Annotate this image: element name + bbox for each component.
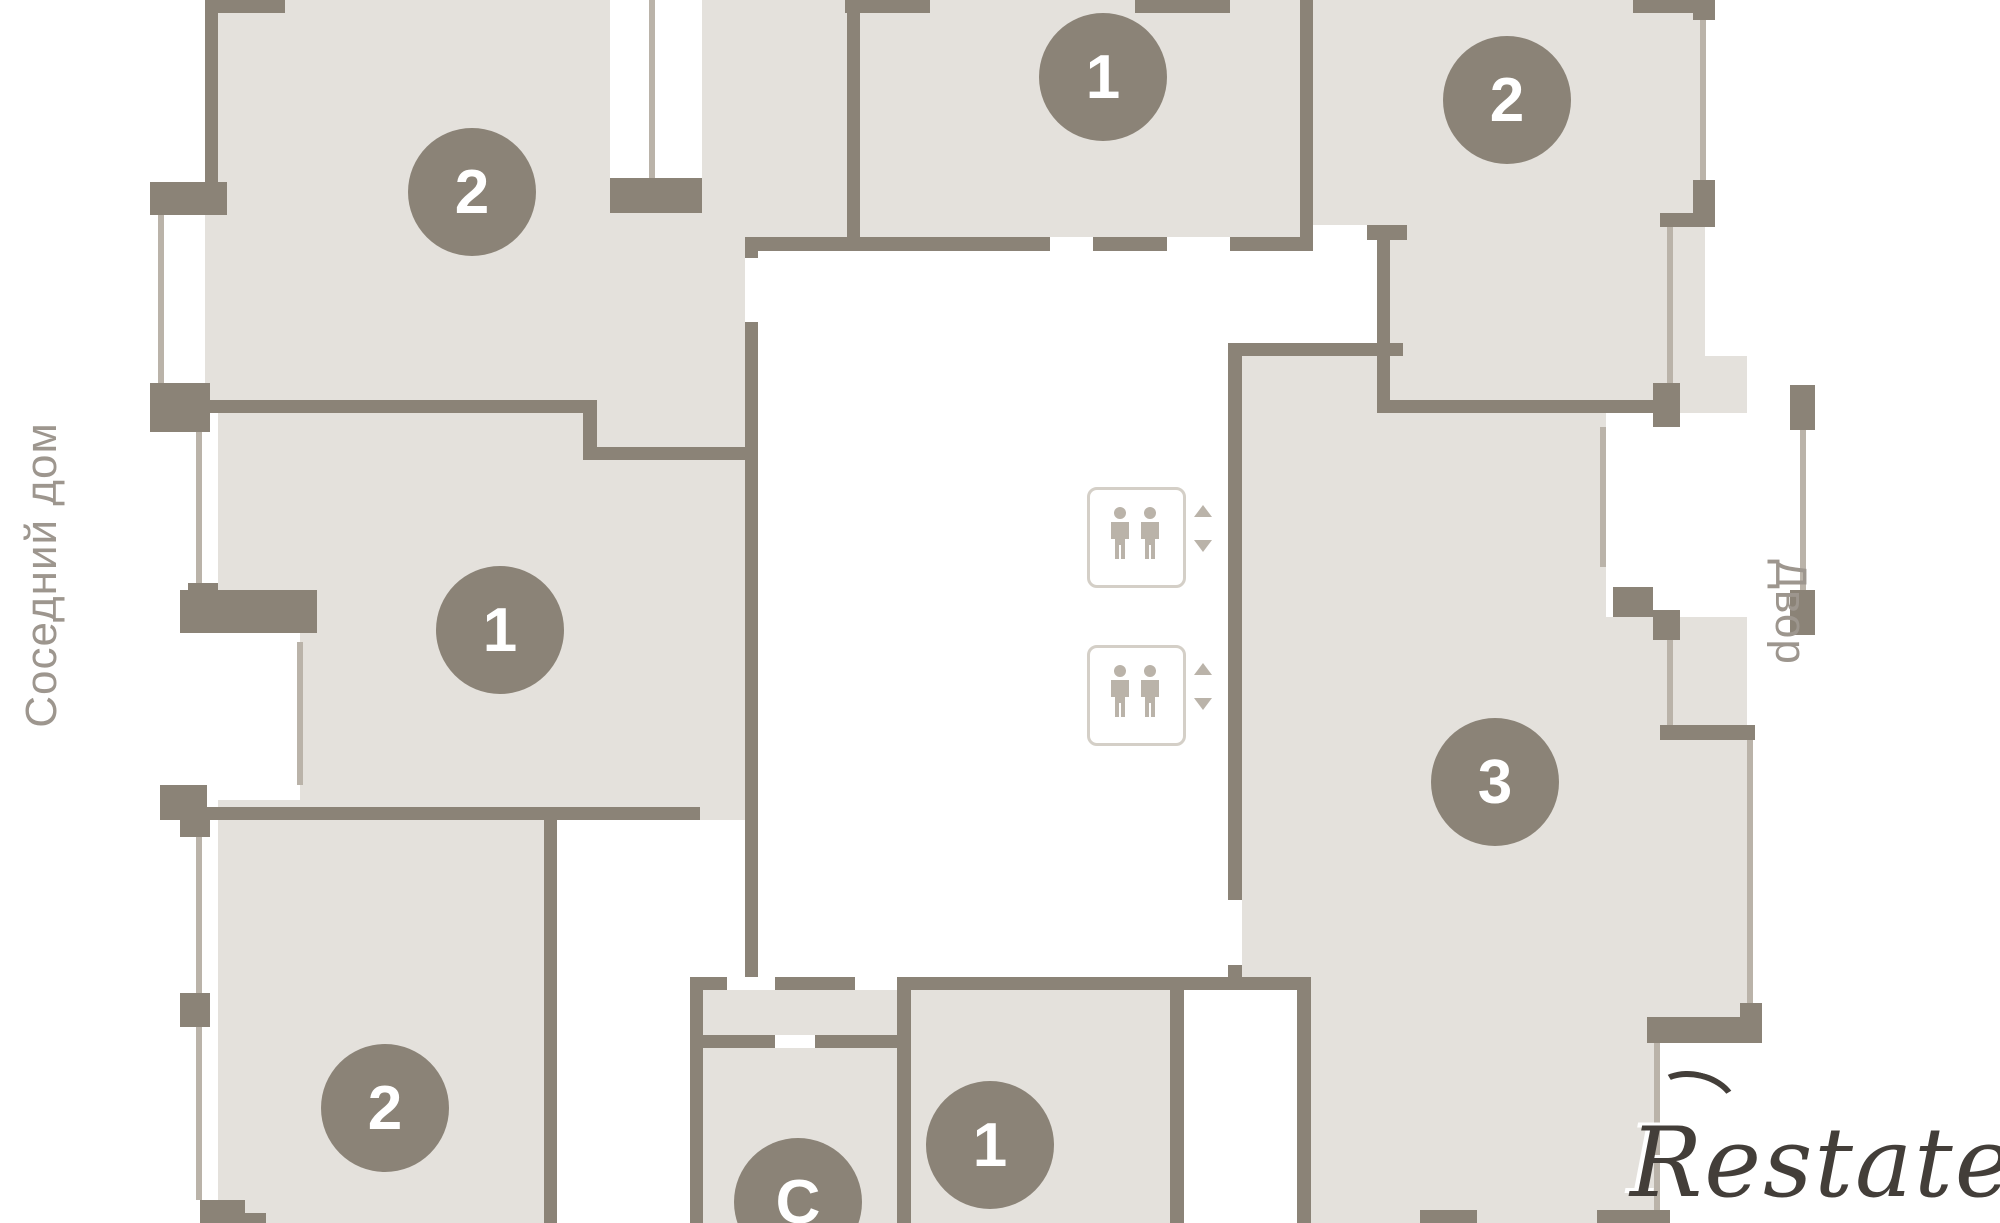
neighbor-house-label: Соседний дом <box>17 325 67 825</box>
apartment-badge-mid-left[interactable]: 1 <box>436 566 564 694</box>
elevator-up-arrow <box>1194 663 1212 675</box>
wall-block <box>1693 0 1715 20</box>
wall-block <box>205 0 218 182</box>
wall-block <box>188 583 218 633</box>
wall-block <box>1647 1017 1740 1043</box>
wall-segment <box>1093 237 1167 251</box>
room-fill-right-large-ext <box>1311 1017 1660 1223</box>
window <box>1667 640 1673 725</box>
stair-elevator-core <box>758 251 1228 977</box>
door-gap <box>727 977 775 990</box>
wall-block <box>200 1213 266 1223</box>
wall-segment <box>1377 225 1390 413</box>
window-notch-top <box>610 0 702 185</box>
wall-segment <box>690 977 1311 990</box>
apartment-badge-bottom-left[interactable]: 2 <box>321 1044 449 1172</box>
door-gap <box>855 977 897 990</box>
door-gap <box>745 258 758 322</box>
window <box>196 432 202 583</box>
apartment-badge-top-left[interactable]: 2 <box>408 128 536 256</box>
door-gap <box>775 1035 815 1048</box>
window <box>649 0 655 180</box>
wall-block <box>1653 383 1680 427</box>
door-gap <box>1050 237 1093 251</box>
elevator-down-arrow <box>1194 698 1212 710</box>
wall-segment <box>745 251 758 977</box>
wall-segment <box>1228 343 1403 356</box>
wall-block <box>1613 587 1653 617</box>
window <box>1700 20 1706 180</box>
elevator-down-arrow <box>1194 540 1212 552</box>
entry-notch-top-right <box>1313 225 1377 343</box>
wall-segment <box>1135 0 1230 13</box>
apartment-badge-top-center[interactable]: 1 <box>1039 13 1167 141</box>
wall-segment <box>1170 977 1184 1223</box>
wall-block <box>1790 385 1815 430</box>
wall-block <box>1740 1003 1762 1043</box>
elevator-1 <box>1087 487 1186 588</box>
window <box>196 837 202 993</box>
apartment-badge-bottom-center[interactable]: 1 <box>926 1081 1054 1209</box>
wall-segment <box>150 400 597 413</box>
wall-block <box>150 383 210 432</box>
wall-segment <box>544 820 557 1223</box>
window <box>297 642 303 785</box>
wall-block <box>150 182 227 215</box>
wall-segment <box>597 447 758 460</box>
apartment-badge-right-large[interactable]: 3 <box>1431 718 1559 846</box>
wall-block <box>1420 1210 1477 1223</box>
elevator-passengers-icon <box>1105 663 1169 728</box>
apartment-badge-top-right[interactable]: 2 <box>1443 36 1571 164</box>
watermark-logo: Restate <box>1630 1115 2000 1211</box>
wall-segment <box>690 990 703 1223</box>
corridor-bottom-left <box>557 820 690 1223</box>
door-gap <box>1167 237 1230 251</box>
wall-block <box>180 993 210 1027</box>
wall-segment <box>847 0 860 251</box>
wall-segment <box>1228 356 1242 990</box>
wall-segment <box>1390 400 1677 413</box>
window <box>1747 740 1753 1003</box>
wall-segment <box>1300 0 1313 251</box>
wall-block <box>610 178 702 213</box>
wall-segment <box>745 237 1050 251</box>
floorplan-canvas: 2 1 2 1 3 2 С 1 <box>0 0 2000 1223</box>
corridor-bottom-right <box>1184 990 1297 1223</box>
wall-block <box>1660 213 1715 227</box>
window <box>158 215 164 383</box>
elevator-2 <box>1087 645 1186 746</box>
wall-block <box>1653 610 1680 640</box>
wall-block <box>180 807 210 837</box>
wall-segment <box>1297 977 1311 1223</box>
wall-segment <box>1367 225 1407 240</box>
wall-segment <box>583 400 597 460</box>
courtyard-label: Двор <box>1765 512 1815 712</box>
elevator-up-arrow <box>1194 505 1212 517</box>
window <box>1667 227 1673 383</box>
balcony-recess-left <box>150 633 300 800</box>
elevator-passengers-icon <box>1105 505 1169 570</box>
window <box>1600 427 1606 567</box>
door-gap <box>1228 900 1242 965</box>
wall-block <box>1660 725 1755 740</box>
window <box>196 1027 202 1200</box>
wall-segment <box>180 807 700 820</box>
wall-segment <box>897 977 911 1223</box>
